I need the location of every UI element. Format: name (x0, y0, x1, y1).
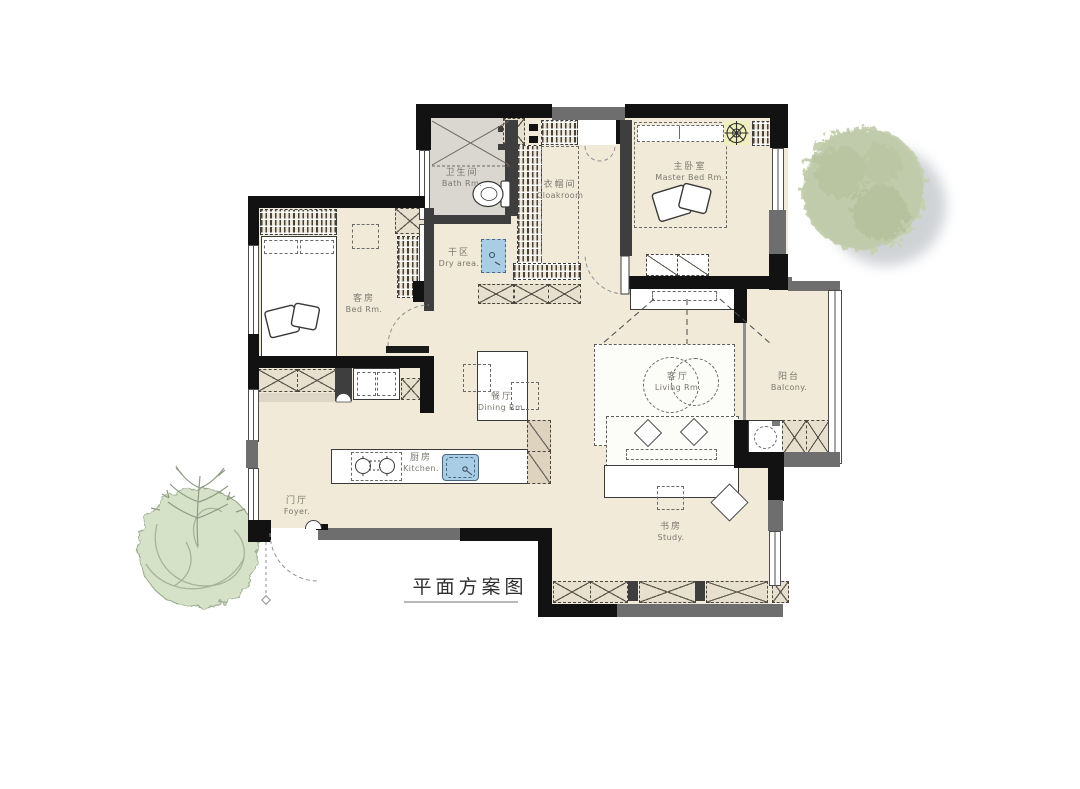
room-label-dining-en: Dining Rm. (478, 403, 526, 413)
hall-white-patch (577, 118, 616, 145)
shelf-strip (258, 393, 335, 402)
page-title: 平面方案图 (412, 572, 527, 599)
cabinet-hatch (401, 378, 421, 400)
master-headboard (637, 125, 724, 142)
wardrobe-outline (541, 146, 579, 274)
cabinet-hatch (782, 420, 807, 455)
cabinet-hatch (553, 581, 591, 603)
wall-segment (734, 288, 747, 323)
headboard-divider (679, 126, 680, 139)
wall-segment (625, 104, 788, 118)
title-underline (404, 601, 518, 603)
room-label-living-zh: 客厅 (655, 372, 701, 383)
ceiling-light-icon (724, 121, 749, 145)
shoe-cabinet-wall (318, 528, 460, 540)
room-label-balcony-en: Balcony. (771, 383, 807, 393)
wall-segment (420, 356, 434, 413)
window (769, 531, 781, 586)
arch-niche (335, 368, 352, 401)
room-label-bath: 卫生间 Bath Rm. (442, 168, 482, 189)
cabinet-hatch (478, 284, 514, 304)
door-hinge-block (529, 124, 538, 131)
sofa-bench (626, 449, 717, 460)
wall-segment (542, 604, 618, 617)
cabinet-hatch (258, 369, 298, 392)
room-label-dry-area: 干区 Dry area. (439, 248, 480, 269)
dining-chair (463, 364, 491, 392)
cabinet-hatch (297, 369, 337, 392)
wall-segment (248, 196, 259, 245)
wall-segment (538, 540, 552, 617)
room-label-bath-zh: 卫生间 (442, 168, 482, 179)
wall-segment (626, 276, 772, 289)
wall-segment (734, 452, 784, 468)
wall-segment (248, 520, 271, 542)
desk-chair (657, 486, 684, 510)
nightstand (352, 224, 379, 249)
room-label-study-en: Study. (658, 533, 685, 543)
washer-panel (772, 421, 780, 426)
room-label-dining: 餐厅 Dining Rm. (478, 392, 526, 413)
wall-segment (428, 215, 511, 224)
dresser (646, 254, 678, 276)
wall-segment (246, 440, 258, 468)
floor-plan-canvas: 卫生间 Bath Rm. 衣帽间 Cloakroom 主卧室 Master Be… (0, 0, 1080, 789)
vanity-basin (377, 372, 396, 396)
pillow (300, 240, 334, 254)
wall-segment (250, 356, 434, 368)
washbasin-cabinet (481, 239, 506, 273)
room-label-study-zh: 书房 (658, 522, 685, 533)
wardrobe-hatch (260, 209, 337, 235)
room-label-foyer-en: Foyer. (284, 507, 310, 517)
room-label-dry-area-en: Dry area. (439, 259, 480, 269)
room-label-guest-bed-en: Bed Rm. (346, 305, 383, 315)
vanity-basin (357, 372, 376, 396)
cabinet-hatch (706, 581, 768, 603)
wall-segment (734, 420, 748, 453)
room-label-master-bed-en: Master Bed Rm. (655, 173, 724, 183)
room-label-living: 客厅 Living Rm. (655, 372, 701, 393)
wall-segment (768, 467, 784, 501)
sink-basin (446, 457, 475, 478)
cabinet-hatch (806, 420, 830, 455)
tall-cabinet (527, 451, 551, 484)
room-label-bath-en: Bath Rm. (442, 179, 482, 189)
room-label-kitchen-en: Kitchen. (403, 464, 439, 474)
wall-segment (768, 500, 783, 531)
room-label-dining-zh: 餐厅 (478, 392, 526, 403)
room-label-guest-bed: 客房 Bed Rm. (346, 294, 383, 315)
room-label-kitchen: 厨房 Kitchen. (403, 453, 439, 474)
wall-segment (617, 604, 783, 617)
room-label-foyer-zh: 门厅 (284, 496, 310, 507)
wall-segment (250, 196, 425, 208)
wall-segment (770, 112, 788, 148)
cabinet-hatch (513, 263, 581, 280)
room-label-dry-area-zh: 干区 (439, 248, 480, 259)
cabinet-hatch (548, 284, 581, 304)
window (828, 290, 842, 464)
room-label-master-bed-zh: 主卧室 (655, 162, 724, 173)
wall-segment (418, 104, 552, 118)
washer-drum (754, 426, 777, 449)
wall-segment (769, 210, 786, 254)
guest-bed (261, 236, 337, 360)
stove (351, 452, 402, 481)
room-label-cloakroom-en: Cloakroom (537, 191, 584, 201)
window (248, 389, 259, 442)
tall-cabinet (527, 420, 551, 452)
tree-canopy-icon (770, 92, 965, 287)
wardrobe-hatch (541, 120, 578, 145)
room-label-balcony: 阳台 Balcony. (771, 372, 807, 393)
room-label-master-bed: 主卧室 Master Bed Rm. (655, 162, 724, 183)
pillow (264, 240, 298, 254)
wall-segment (505, 120, 518, 216)
wall-segment (620, 120, 632, 256)
wall-segment (769, 254, 788, 290)
wall-segment (784, 452, 810, 467)
room-label-foyer: 门厅 Foyer. (284, 496, 310, 517)
balcony-door-frame (743, 323, 746, 420)
window (248, 468, 259, 522)
dresser (677, 254, 709, 276)
window (772, 148, 784, 212)
room-label-kitchen-zh: 厨房 (403, 453, 439, 464)
room-label-cloakroom-zh: 衣帽间 (537, 180, 584, 191)
room-label-study: 书房 Study. (658, 522, 685, 543)
wall-segment (460, 528, 552, 541)
room-label-balcony-zh: 阳台 (771, 372, 807, 383)
cabinet-post (695, 581, 705, 601)
cabinet-post (628, 581, 638, 601)
wardrobe-hatch (517, 145, 542, 264)
wall-segment (552, 107, 625, 120)
door-hinge-block (529, 136, 538, 143)
cabinet-hatch (590, 581, 628, 603)
room-label-living-en: Living Rm. (655, 383, 701, 393)
room-label-guest-bed-zh: 客房 (346, 294, 383, 305)
wall-segment (424, 208, 434, 311)
wall-segment (810, 452, 840, 467)
window (248, 245, 259, 336)
cabinet-hatch (639, 581, 696, 603)
room-label-cloakroom: 衣帽间 Cloakroom (537, 180, 584, 201)
tv-set (652, 291, 717, 301)
wall-segment (416, 104, 431, 150)
cabinet-hatch (514, 284, 549, 304)
